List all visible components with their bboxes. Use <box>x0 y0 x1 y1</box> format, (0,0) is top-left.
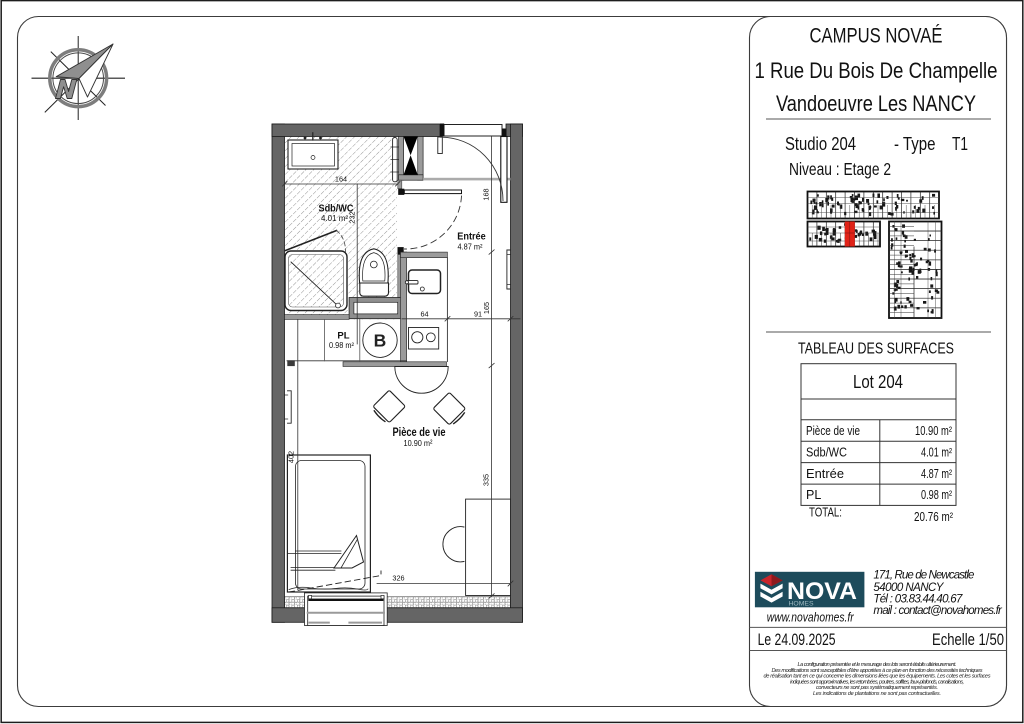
svg-text:Echelle 1/50: Echelle 1/50 <box>932 631 1004 649</box>
svg-text:TABLEAU DES SURFACES: TABLEAU DES SURFACES <box>798 341 954 358</box>
svg-text:Les indications de plantations: Les indications de plantations ne sont p… <box>813 691 941 697</box>
svg-text:Sdb/WC: Sdb/WC <box>806 445 847 459</box>
svg-text:10.90 m²: 10.90 m² <box>404 438 433 448</box>
svg-text:326: 326 <box>392 574 404 583</box>
svg-text:T1: T1 <box>952 134 968 154</box>
svg-text:0.98 m²: 0.98 m² <box>329 341 354 350</box>
svg-text:Lot 204: Lot 204 <box>853 371 903 392</box>
svg-text:TOTAL:: TOTAL: <box>809 506 842 520</box>
svg-text:mail : contact@novahomes.fr: mail : contact@novahomes.fr <box>873 605 1003 617</box>
svg-text:54000 NANCY: 54000 NANCY <box>873 582 944 594</box>
svg-text:4.01 m²: 4.01 m² <box>321 214 348 223</box>
svg-text:www.novahomes.fr: www.novahomes.fr <box>767 610 855 625</box>
svg-text:64: 64 <box>420 309 428 318</box>
svg-text:PL: PL <box>806 488 821 502</box>
svg-text:Tél : 03.83.44.40.67: Tél : 03.83.44.40.67 <box>873 594 963 606</box>
svg-text:Pièce de vie: Pièce de vie <box>806 424 860 438</box>
svg-text:B: B <box>374 331 387 351</box>
svg-text:168: 168 <box>481 188 490 200</box>
svg-text:4.01 m²: 4.01 m² <box>921 445 952 459</box>
svg-text:Sdb/WC: Sdb/WC <box>319 203 354 215</box>
svg-text:10.90 m²: 10.90 m² <box>915 424 952 438</box>
svg-text:1 Rue Du Bois De Champelle: 1 Rue Du Bois De Champelle <box>755 58 998 83</box>
svg-text:- Type: - Type <box>894 134 936 154</box>
svg-text:HOMES: HOMES <box>789 601 814 608</box>
svg-text:402: 402 <box>287 451 296 463</box>
svg-text:CAMPUS NOVAÉ: CAMPUS NOVAÉ <box>810 23 943 48</box>
svg-text:335: 335 <box>481 474 490 486</box>
svg-text:Vandoeuvre Les NANCY: Vandoeuvre Les NANCY <box>776 91 976 116</box>
svg-text:165: 165 <box>482 302 491 314</box>
svg-text:171, Rue de Newcastle: 171, Rue de Newcastle <box>873 570 974 582</box>
svg-text:Le 24.09.2025: Le 24.09.2025 <box>758 631 836 649</box>
svg-text:Niveau : Etage 2: Niveau : Etage 2 <box>789 159 891 179</box>
svg-text:20.76 m²: 20.76 m² <box>914 510 953 524</box>
svg-text:Entrée: Entrée <box>457 231 486 243</box>
svg-text:PL: PL <box>337 331 349 342</box>
svg-text:0.98 m²: 0.98 m² <box>921 488 952 502</box>
svg-text:4.87 m²: 4.87 m² <box>921 467 952 481</box>
svg-text:Entrée: Entrée <box>806 467 844 481</box>
svg-text:4.87 m²: 4.87 m² <box>458 243 483 252</box>
svg-text:Studio 204: Studio 204 <box>785 134 856 154</box>
svg-text:164: 164 <box>335 175 347 184</box>
